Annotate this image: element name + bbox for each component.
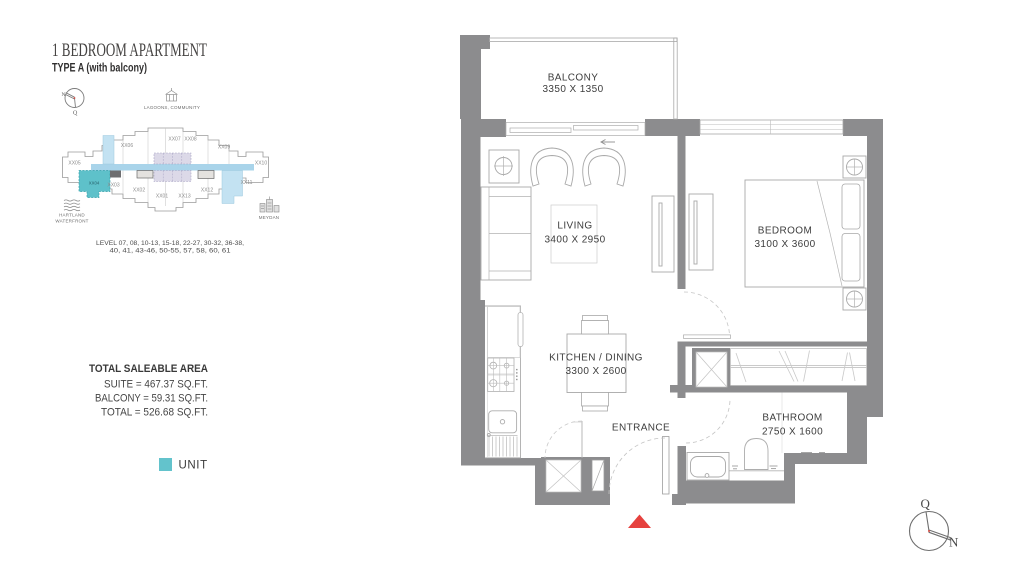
svg-text:40, 41, 43-46, 50-55, 57, 58,: 40, 41, 43-46, 50-55, 57, 58, 60, 61 [110, 248, 232, 255]
svg-text:3400 X 2950: 3400 X 2950 [544, 235, 605, 246]
svg-text:XX02: XX02 [133, 188, 145, 194]
svg-text:XX11: XX11 [241, 180, 253, 186]
svg-text:XX01: XX01 [156, 194, 168, 200]
svg-text:XX06: XX06 [121, 143, 133, 149]
svg-text:2750 X 1600: 2750 X 1600 [762, 427, 823, 438]
svg-text:3300 X 2600: 3300 X 2600 [565, 366, 626, 377]
svg-text:HARTLAND: HARTLAND [59, 213, 85, 218]
svg-text:3350 X 1350: 3350 X 1350 [542, 84, 603, 95]
svg-text:TOTAL = 526.68 SQ.FT.: TOTAL = 526.68 SQ.FT. [101, 407, 208, 419]
svg-text:N: N [62, 92, 66, 98]
svg-text:TOTAL SALEABLE AREA: TOTAL SALEABLE AREA [89, 363, 208, 375]
svg-text:LIVING: LIVING [557, 221, 592, 232]
svg-text:XX04: XX04 [89, 181, 100, 186]
svg-text:BATHROOM: BATHROOM [762, 413, 822, 424]
svg-text:ENTRANCE: ENTRANCE [612, 423, 670, 434]
svg-text:Q: Q [73, 111, 78, 117]
svg-text:Q: Q [921, 496, 931, 511]
svg-text:N: N [949, 535, 959, 550]
svg-text:SUITE = 467.37 SQ.FT.: SUITE = 467.37 SQ.FT. [104, 379, 208, 391]
svg-text:XX12: XX12 [201, 188, 213, 194]
svg-text:XX13: XX13 [178, 194, 190, 200]
svg-text:XX07: XX07 [168, 137, 180, 143]
svg-text:XX09: XX09 [218, 145, 230, 151]
svg-text:LAGOONS, COMMUNITY: LAGOONS, COMMUNITY [144, 105, 200, 110]
svg-text:TYPE A (with balcony): TYPE A (with balcony) [52, 61, 147, 75]
svg-text:BALCONY: BALCONY [548, 73, 599, 84]
svg-text:MEYDAN: MEYDAN [259, 215, 279, 220]
svg-text:XX05: XX05 [68, 161, 80, 167]
svg-text:BEDROOM: BEDROOM [758, 226, 812, 237]
svg-text:XX03: XX03 [107, 183, 119, 189]
svg-text:KITCHEN / DINING: KITCHEN / DINING [549, 353, 643, 364]
svg-text:3100 X 3600: 3100 X 3600 [754, 239, 815, 250]
svg-text:XX08: XX08 [184, 137, 196, 143]
svg-text:BALCONY = 59.31 SQ.FT.: BALCONY = 59.31 SQ.FT. [95, 393, 208, 405]
svg-text:XX10: XX10 [255, 161, 267, 167]
svg-text:LEVEL 07, 08, 10-13, 15-18, 22: LEVEL 07, 08, 10-13, 15-18, 22-27, 30-32… [96, 240, 244, 247]
svg-text:UNIT: UNIT [179, 460, 208, 472]
svg-text:WATERFRONT: WATERFRONT [55, 219, 88, 224]
svg-text:1 BEDROOM APARTMENT: 1 BEDROOM APARTMENT [52, 40, 207, 61]
